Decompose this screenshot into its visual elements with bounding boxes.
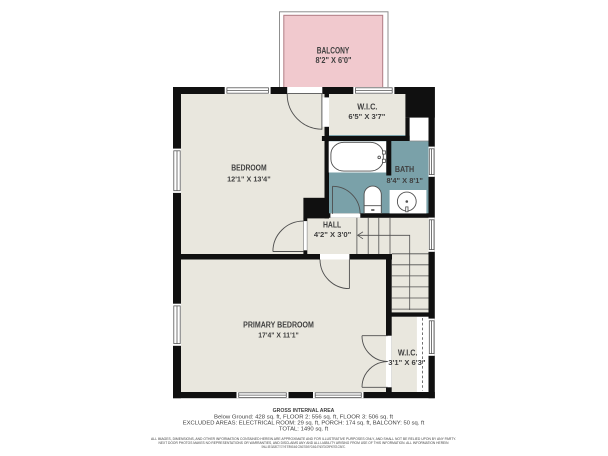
svg-text:6'5" X 3'7": 6'5" X 3'7" [348, 112, 385, 121]
svg-text:SHALL BE SUBJECT TO THE TERMS: SHALL BE SUBJECT TO THE TERMS AND CONDIT… [262, 445, 346, 449]
svg-text:W.I.C.: W.I.C. [357, 103, 377, 112]
svg-text:8'2" X 6'0": 8'2" X 6'0" [315, 56, 351, 65]
svg-text:8'4" X 8'1": 8'4" X 8'1" [386, 176, 423, 185]
svg-text:BEDROOM: BEDROOM [231, 164, 267, 173]
svg-text:12'1" X 13'4": 12'1" X 13'4" [227, 174, 271, 183]
svg-text:BATH: BATH [395, 165, 414, 174]
svg-text:3'1" X 6'3": 3'1" X 6'3" [388, 358, 426, 367]
svg-text:EXCLUDED AREAS: ELECTRICAL ROO: EXCLUDED AREAS: ELECTRICAL ROOM: 29 sq. … [183, 421, 425, 427]
svg-text:GROSS INTERNAL AREA: GROSS INTERNAL AREA [273, 408, 335, 414]
svg-text:PRIMARY BEDROOM: PRIMARY BEDROOM [243, 320, 314, 329]
svg-text:HALL: HALL [323, 221, 341, 230]
svg-text:TOTAL: 1490 sq. ft: TOTAL: 1490 sq. ft [279, 427, 329, 433]
svg-text:W.I.C.: W.I.C. [398, 349, 418, 358]
svg-text:BALCONY: BALCONY [317, 46, 350, 56]
svg-text:17'4" X 11'1": 17'4" X 11'1" [258, 331, 299, 340]
svg-text:Below Ground: 428 sq. ft, FLOO: Below Ground: 428 sq. ft, FLOOR 2: 556 s… [214, 414, 394, 420]
svg-text:4'2" X 3'0": 4'2" X 3'0" [314, 230, 352, 239]
